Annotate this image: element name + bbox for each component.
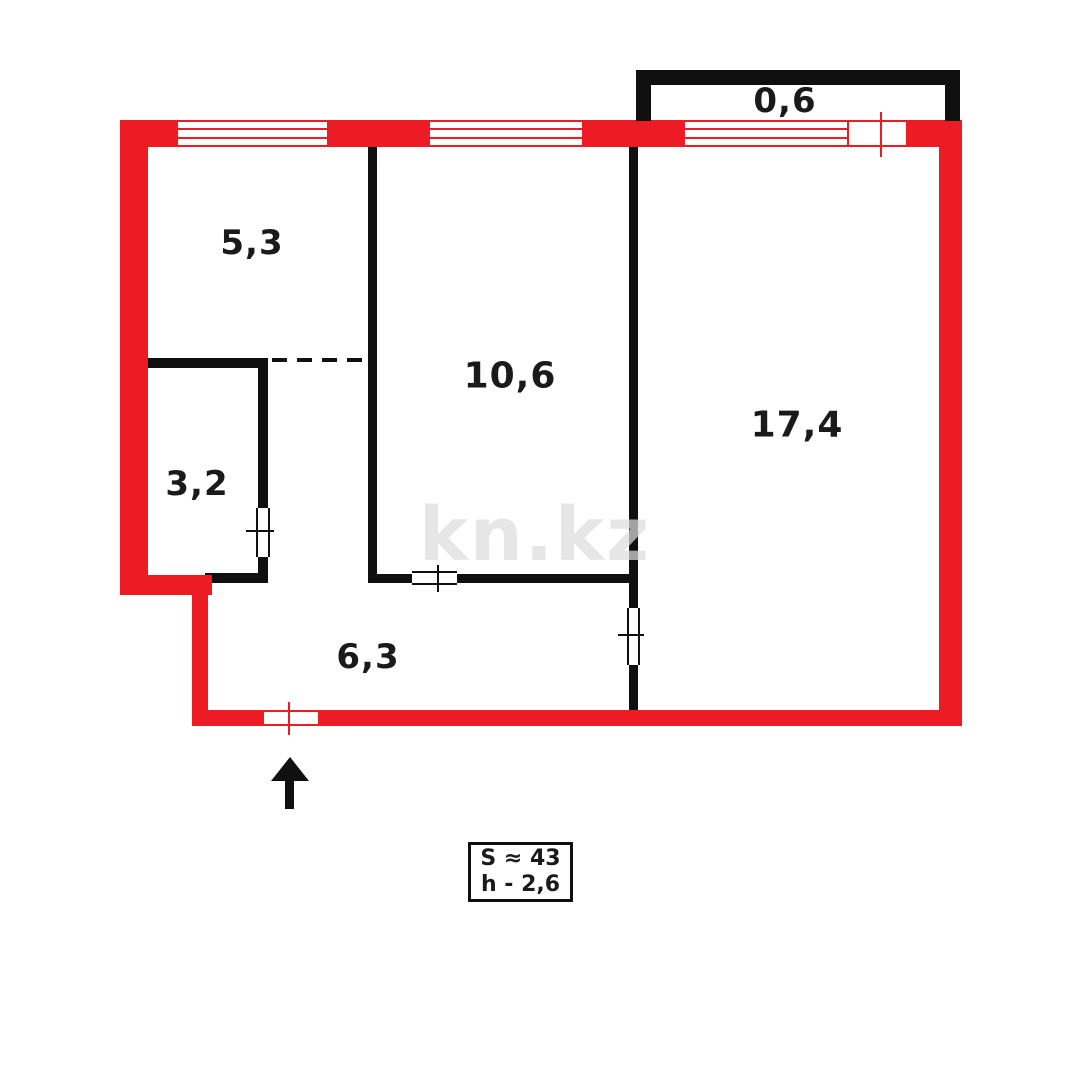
summary-total-area: S ≈ 43 — [480, 846, 560, 872]
balcony-door-tick — [880, 112, 882, 157]
inner-wall-room-a-b — [368, 147, 377, 583]
bathroom-door-tick — [246, 530, 274, 532]
bathroom-door-opening — [256, 508, 270, 557]
room-label-balcony: 0,6 — [753, 81, 816, 121]
balcony-door-opening — [847, 120, 908, 147]
room-b-opening — [412, 571, 457, 585]
room-label-room-a: 5,3 — [220, 223, 283, 263]
window-icon — [430, 120, 582, 147]
summary-box: S ≈ 43 h - 2,6 — [468, 842, 573, 902]
entrance-door-opening — [262, 710, 320, 726]
room-label-room-c: 17,4 — [751, 405, 844, 446]
room-b-opening-tick — [437, 565, 439, 592]
balcony-wall-right — [945, 70, 960, 121]
window-icon — [685, 120, 847, 147]
summary-ceiling-height: h - 2,6 — [481, 872, 560, 898]
room-label-room-b: 10,6 — [464, 356, 557, 397]
outer-wall-right — [939, 121, 962, 726]
room-label-bathroom: 3,2 — [165, 464, 228, 504]
entrance-door-tick — [288, 702, 290, 735]
outer-wall-step-vertical — [192, 575, 208, 726]
window-icon — [178, 120, 327, 147]
room-c-door-opening — [627, 608, 640, 665]
entrance-arrow-icon — [271, 757, 309, 781]
dashed-partition-line — [272, 358, 368, 362]
bathroom-wall-top — [148, 358, 268, 368]
outer-wall-left — [120, 120, 148, 595]
room-label-hallway: 6,3 — [336, 637, 399, 677]
bathroom-wall-bottom — [205, 573, 268, 583]
inner-wall-room-b-bottom — [368, 574, 638, 583]
floor-plan: 0,6 5,3 10,6 17,4 3,2 6,3 S ≈ 43 h - 2,6… — [0, 0, 1080, 1080]
entrance-arrow-stem — [285, 779, 294, 809]
room-c-door-tick — [618, 634, 644, 636]
balcony-wall-left — [636, 70, 651, 121]
watermark: kn.kz — [375, 492, 695, 578]
